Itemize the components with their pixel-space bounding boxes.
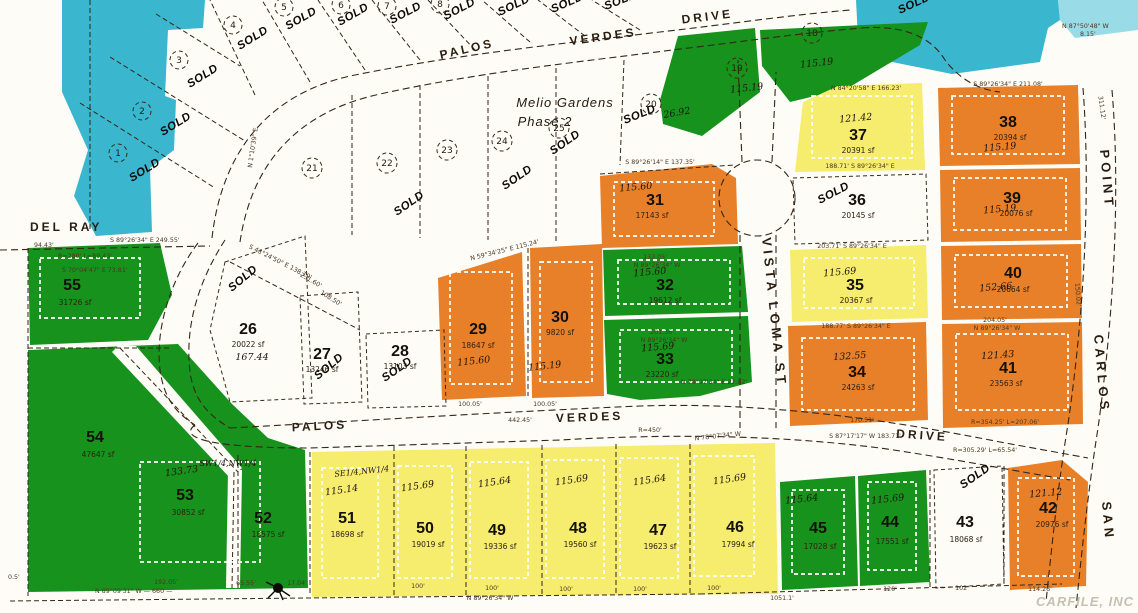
lot-number: 21 [306,164,317,174]
bearing-text: N 89°26'34" W [641,336,689,344]
lot-number: 45 [809,520,827,537]
lot-area: 13246 sf [306,365,339,374]
lot-number: 8 [437,0,443,10]
quarter-section-label-sw: SW1/4,NW1/4 [199,459,256,468]
lot-area: 19560 sf [564,540,597,549]
street-label-del-ray: DEL RAY [30,220,102,234]
sold-stamp: SOLD [549,0,585,16]
lot-number: 36 [848,192,866,209]
lot-26-outline [210,236,312,402]
creek-band-lower [226,470,242,588]
bearing-text: R=280' L=89.43' [58,253,112,260]
lot-area: 18575 sf [252,530,285,539]
dimension-text: 100' [485,585,499,592]
lot-number: 43 [956,514,974,531]
dimension-text: 100' [559,586,573,593]
lot-area: 20976 sf [1036,520,1069,529]
lot-area: 19623 sf [644,542,677,551]
dimension-text: 1051.1' [770,595,794,602]
lot-number: 7 [384,2,390,12]
lot-number: 37 [849,127,867,144]
watermark-text: CARFILE, INC [1036,594,1134,609]
lot-number: 35 [846,277,864,294]
water-area-corner [1058,0,1138,38]
dimension-text: 0.5' [8,574,20,581]
lot-number: 41 [999,360,1017,377]
street-label-carlos: CARLOS [1091,334,1113,414]
lot-area: 13103 sf [384,362,417,371]
dimension-text: 120' [883,586,897,593]
lot-number: 29 [469,321,487,338]
lot-area: 30852 sf [172,508,205,517]
bearing-text: S 70°04'47" E 73.81' [62,266,128,274]
bearing-text: 170.51' [850,417,874,424]
lot-number: 47 [649,522,667,539]
street-label-verdes-top: VERDES [569,25,638,48]
bearing-text: 201.36' [650,329,674,336]
bearing-text: 133.05' [643,254,667,261]
dimension-text: 192.05' [154,579,178,586]
lot-36-outline [793,174,928,244]
lot-area: 20367 sf [840,296,873,305]
lot-number: 28 [391,343,409,360]
bearing-text: N 89°26'34" W [467,594,515,602]
sold-stamp: SOLD [442,0,478,23]
bearing-text: S 89°26'34" E 211.08' [973,80,1043,88]
sold-stamp: SOLD [226,263,260,294]
bearing-text: N 89°26'34" W [634,261,682,269]
dimension-text: 100' [633,586,647,593]
street-label-palos-top: PALOS [438,36,495,62]
lot-area: 17028 sf [804,542,837,551]
bearing-text: R=354.25' L=207.06' [971,419,1039,426]
subdivision-title-line2: Phase 2 [518,114,573,129]
lot-number: 19 [731,64,743,74]
bearing-text: N 1°10'39" E [246,127,260,168]
dimension-text: 65.55' [236,580,256,587]
sold-stamp: SOLD [496,0,532,19]
lot-19-shape [660,28,760,136]
lot-number: 5 [281,3,287,13]
dimension-text: 100' [411,583,425,590]
street-label-vista-loma: VISTA LOMA ST [759,237,790,388]
bearing-text: 203.71' S 89°26'34" E [817,242,887,250]
bearing-text: N 89°26'34" W [974,324,1022,332]
bearing-text: S 89°26'14" E 137.35' [625,158,695,166]
lot-number: 32 [656,277,674,294]
bearing-text: R=305.29' L=65.54' [953,447,1017,454]
lot-number: 34 [848,364,866,381]
bearing-text: 100.05' [533,401,557,408]
lot-number: 52 [254,510,272,527]
handwritten-dim: 132.55 [833,350,867,363]
lot-area: 18698 sf [331,530,364,539]
handwritten-dim: 167.44 [235,352,268,363]
lot-number: 55 [63,277,81,294]
lot-number: 1 [115,149,121,159]
handwritten-dim: 115.19 [730,81,764,95]
lot-number: 53 [176,487,194,504]
bearing-text: 204.05' [983,317,1007,324]
lot-area: 23563 sf [990,379,1023,388]
plat-map: 1 2 3 4 5 6 7 8 18 19 20 21 22 23 24 25 … [0,0,1138,613]
bearing-text: N 78°07'34" W [694,430,742,443]
lot-number: 31 [646,192,664,209]
street-label-verdes-mid: VERDES [556,409,624,425]
lot-area: 17143 sf [636,211,669,220]
bearing-text: N 89°09'31" W — 660 — [95,587,172,595]
bearing-text: 188.77' S 89°26'34" E [821,322,891,330]
lot-number: 48 [569,520,587,537]
sold-stamp: SOLD [388,0,424,27]
lot-area: 31726 sf [59,298,92,307]
vista-loma-edge2 [772,72,776,162]
lot-area: 23220 sf [646,370,679,379]
lot-area: 19336 sf [484,542,517,551]
lot-number: 42 [1039,500,1057,517]
bearing-text: 442.45' [508,417,532,424]
sold-stamp: SOLD [816,180,852,207]
bearing-text: 108.50' [319,289,343,308]
lot-area: 20145 sf [842,211,875,220]
sold-stamp: SOLD [392,189,427,218]
lot-number: 46 [726,519,744,536]
lot-number: 54 [86,429,104,446]
sold-stamp: SOLD [500,163,535,192]
lot-number: 51 [338,510,356,527]
lot-number: 33 [656,351,674,368]
lot-number: 50 [416,520,434,537]
lot-32-shape [603,246,748,316]
lot-number: 22 [381,159,392,169]
lot-area: 17994 sf [722,540,755,549]
lot-27-outline [300,292,362,404]
bearing-text: N 87°50'48" W [1062,22,1110,30]
lot-number: 2 [139,107,145,117]
dimension-text: 114.26' [1028,586,1052,593]
lot-number: 26 [239,321,257,338]
lot-area: 19612 sf [649,296,682,305]
street-label-palos-mid: PALOS [291,417,347,434]
lot-33-shape [604,316,752,400]
lot-number: 23 [441,146,452,156]
sold-stamp: SOLD [185,62,220,90]
lot-area: 24263 sf [842,383,875,392]
bearing-text: 100.05' [458,401,482,408]
bearing-text: S 89°26'34" E 249.55' [110,236,180,244]
lot-area: 9820 sf [546,328,574,337]
lot-number: 24 [496,137,508,147]
bearing-text: R=450' [638,427,662,434]
lot-area: 20391 sf [842,146,875,155]
lot-area: 47647 sf [82,450,115,459]
sold-stamp: SOLD [958,462,993,491]
lot-area: 20022 sf [232,340,265,349]
street-label-point: POINT [1097,149,1117,210]
bearing-text: N 84°20'58" E 166.23' [831,84,902,92]
dimension-text: 102' [955,585,969,592]
bearing-text: 311.12' [1096,96,1106,121]
bearing-text: 8.15' [1080,31,1096,38]
lot-area: 18647 sf [462,341,495,350]
lot-area: 18068 sf [950,535,983,544]
lot-number: 3 [176,56,182,66]
sold-stamp: SOLD [235,24,270,52]
street-label-san: SAN [1099,501,1117,542]
dimension-text: 17.04' [287,580,307,587]
sold-stamp: SOLD [622,103,658,127]
subdivision-title-line1: Melio Gardens [516,95,614,110]
lot-number: 30 [551,309,569,326]
bearing-text: N 78°07'34" E 22.02' [681,378,748,386]
lot-number: 49 [488,522,506,539]
bearing-text: 188.71' S 89°26'34" E [825,162,895,170]
sold-stamp: SOLD [284,5,319,32]
dimension-text: 100' [707,585,721,592]
lot-number: 18 [806,29,818,39]
bearing-text: S 87°17'17" W 183.71' [829,432,901,440]
street-label-drive-mid: DRIVE [896,426,949,444]
handwritten-dim: 121.43 [981,349,1015,362]
lot-area: 17551 sf [876,537,909,546]
lot-number: 38 [999,114,1017,131]
lot-number: 4 [230,21,236,31]
bearing-text: 94.43' [34,242,54,249]
lot-number: 40 [1004,265,1022,282]
sold-stamp: SOLD [603,0,639,13]
lot-boundary [620,60,624,165]
lot-number: 27 [313,346,331,363]
lot-number: 44 [881,514,899,531]
lot-area: 19019 sf [412,540,445,549]
lot-number: 6 [338,1,344,11]
